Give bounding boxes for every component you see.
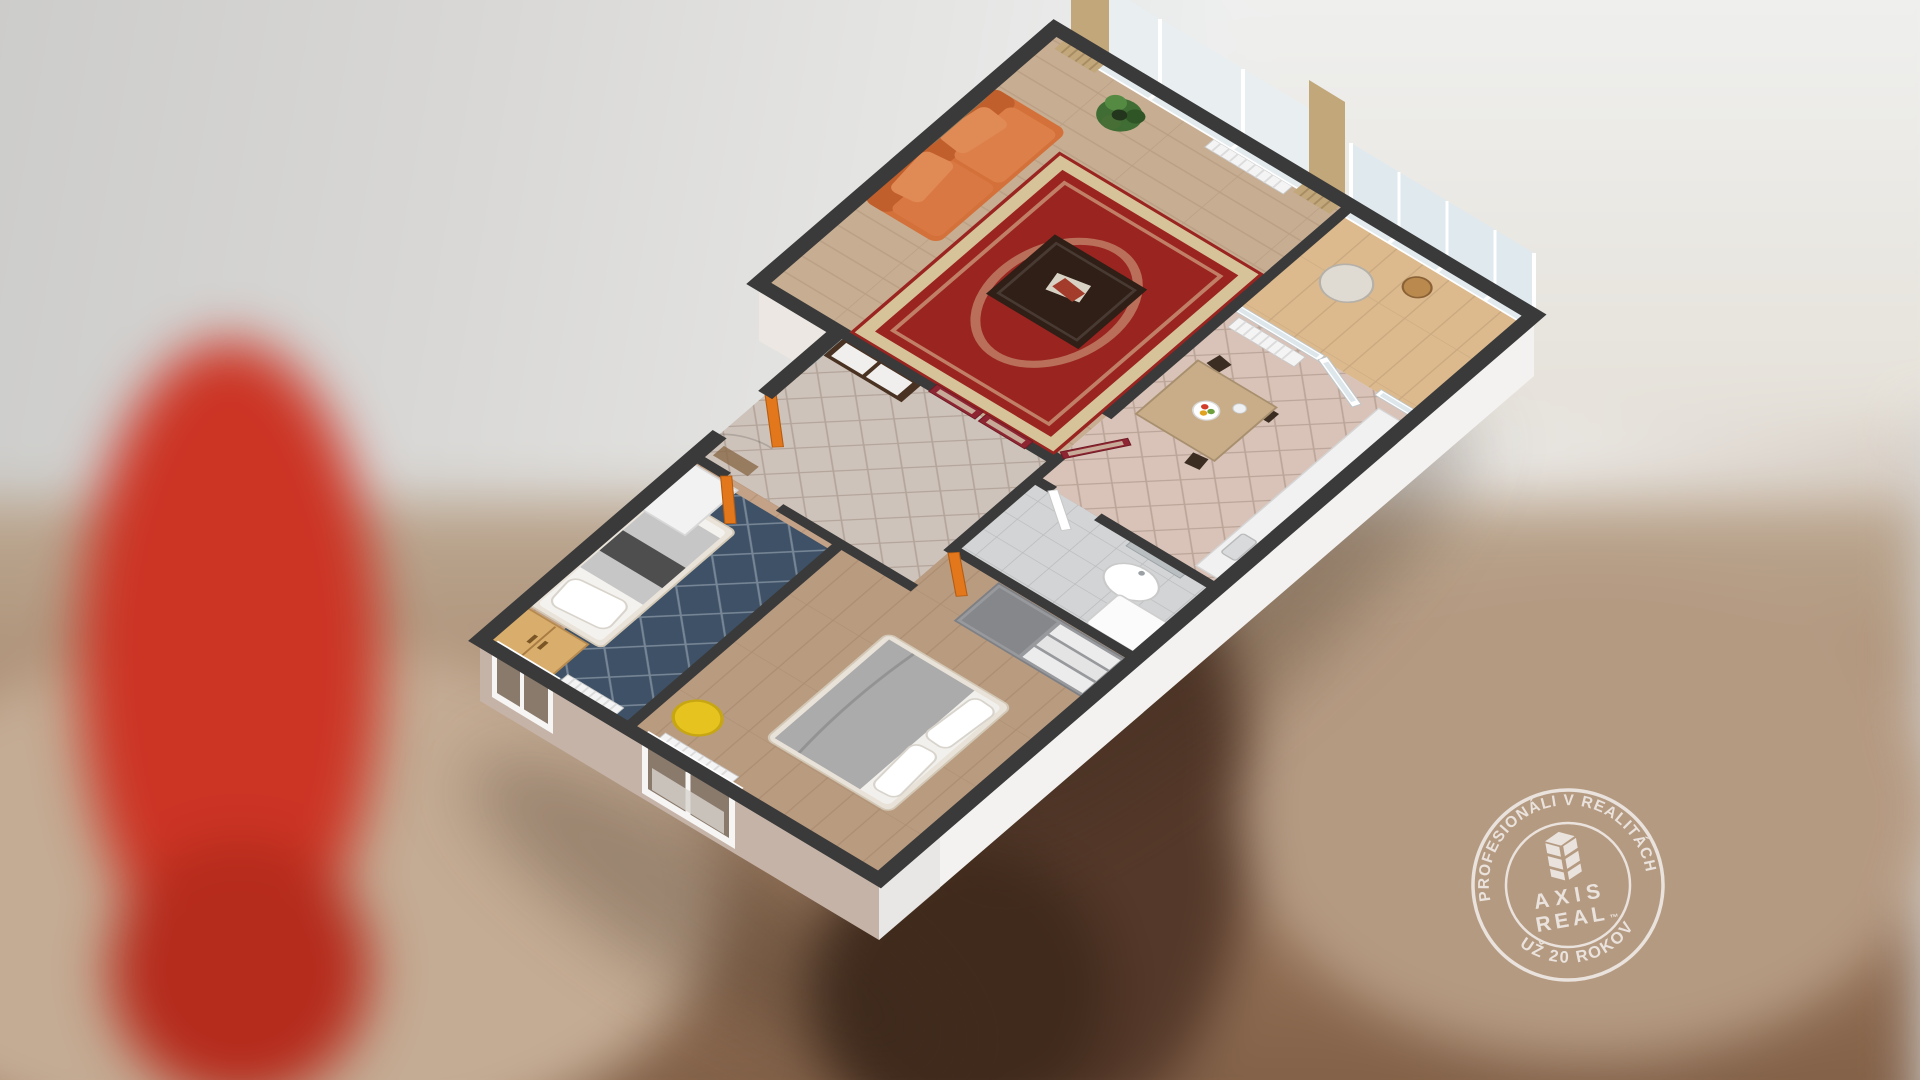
axis-real-logo-building-icon bbox=[1544, 829, 1583, 883]
axis-real-watermark: PROFESIONÁLI V REALITÁCH UŽ 20 ROKOV AXI… bbox=[1458, 775, 1678, 995]
watermark-trademark: ™ bbox=[1609, 912, 1620, 923]
watermark-layer: PROFESIONÁLI V REALITÁCH UŽ 20 ROKOV AXI… bbox=[0, 0, 1920, 1080]
floor-plan-render-image: { "image_type": "3d-floor-plan-real-esta… bbox=[0, 0, 1920, 1080]
